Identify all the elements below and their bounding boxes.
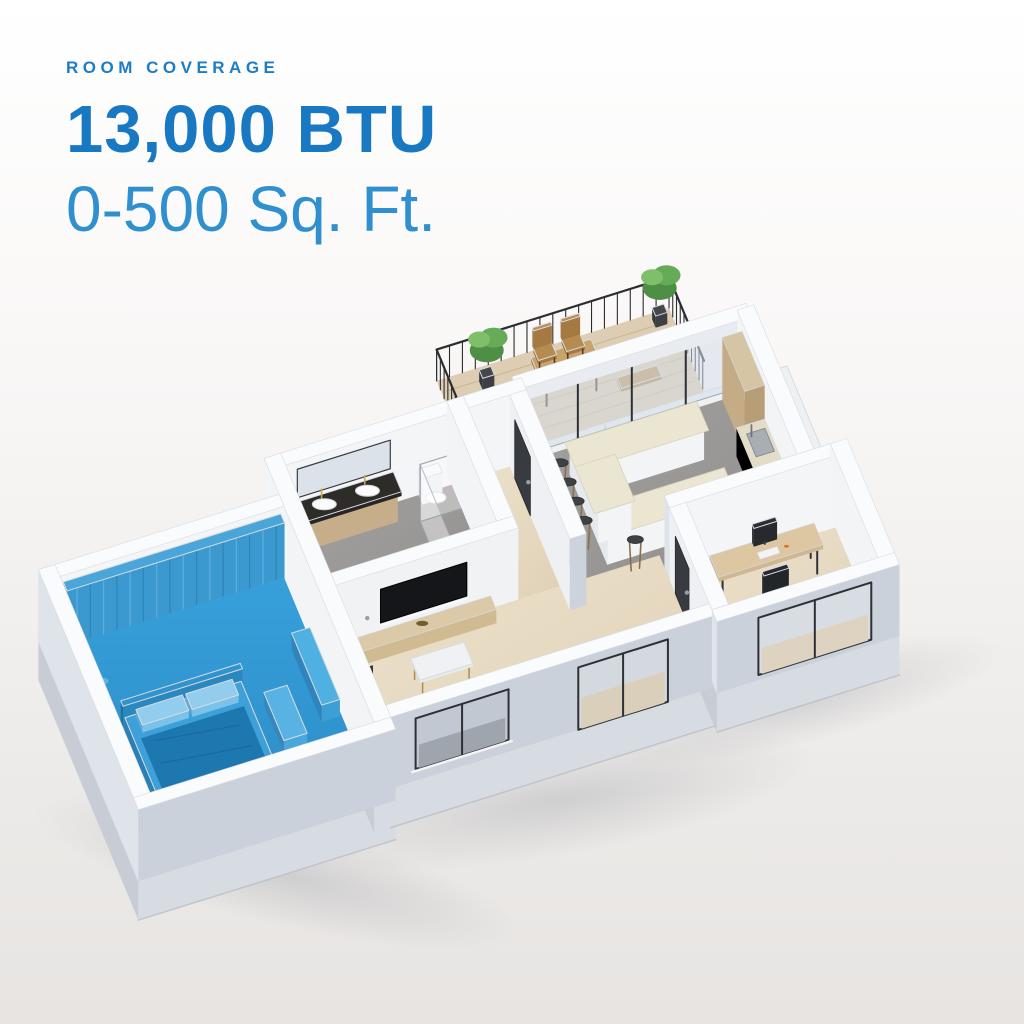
infographic-canvas: ROOM COVERAGE 13,000 BTU 0-500 Sq. Ft. bbox=[0, 0, 1024, 1024]
coverage-heading: 0-500 Sq. Ft. bbox=[66, 177, 437, 241]
btu-rating-heading: 13,000 BTU bbox=[66, 96, 437, 163]
eyebrow-label: ROOM COVERAGE bbox=[66, 58, 437, 78]
header: ROOM COVERAGE 13,000 BTU 0-500 Sq. Ft. bbox=[66, 58, 437, 241]
